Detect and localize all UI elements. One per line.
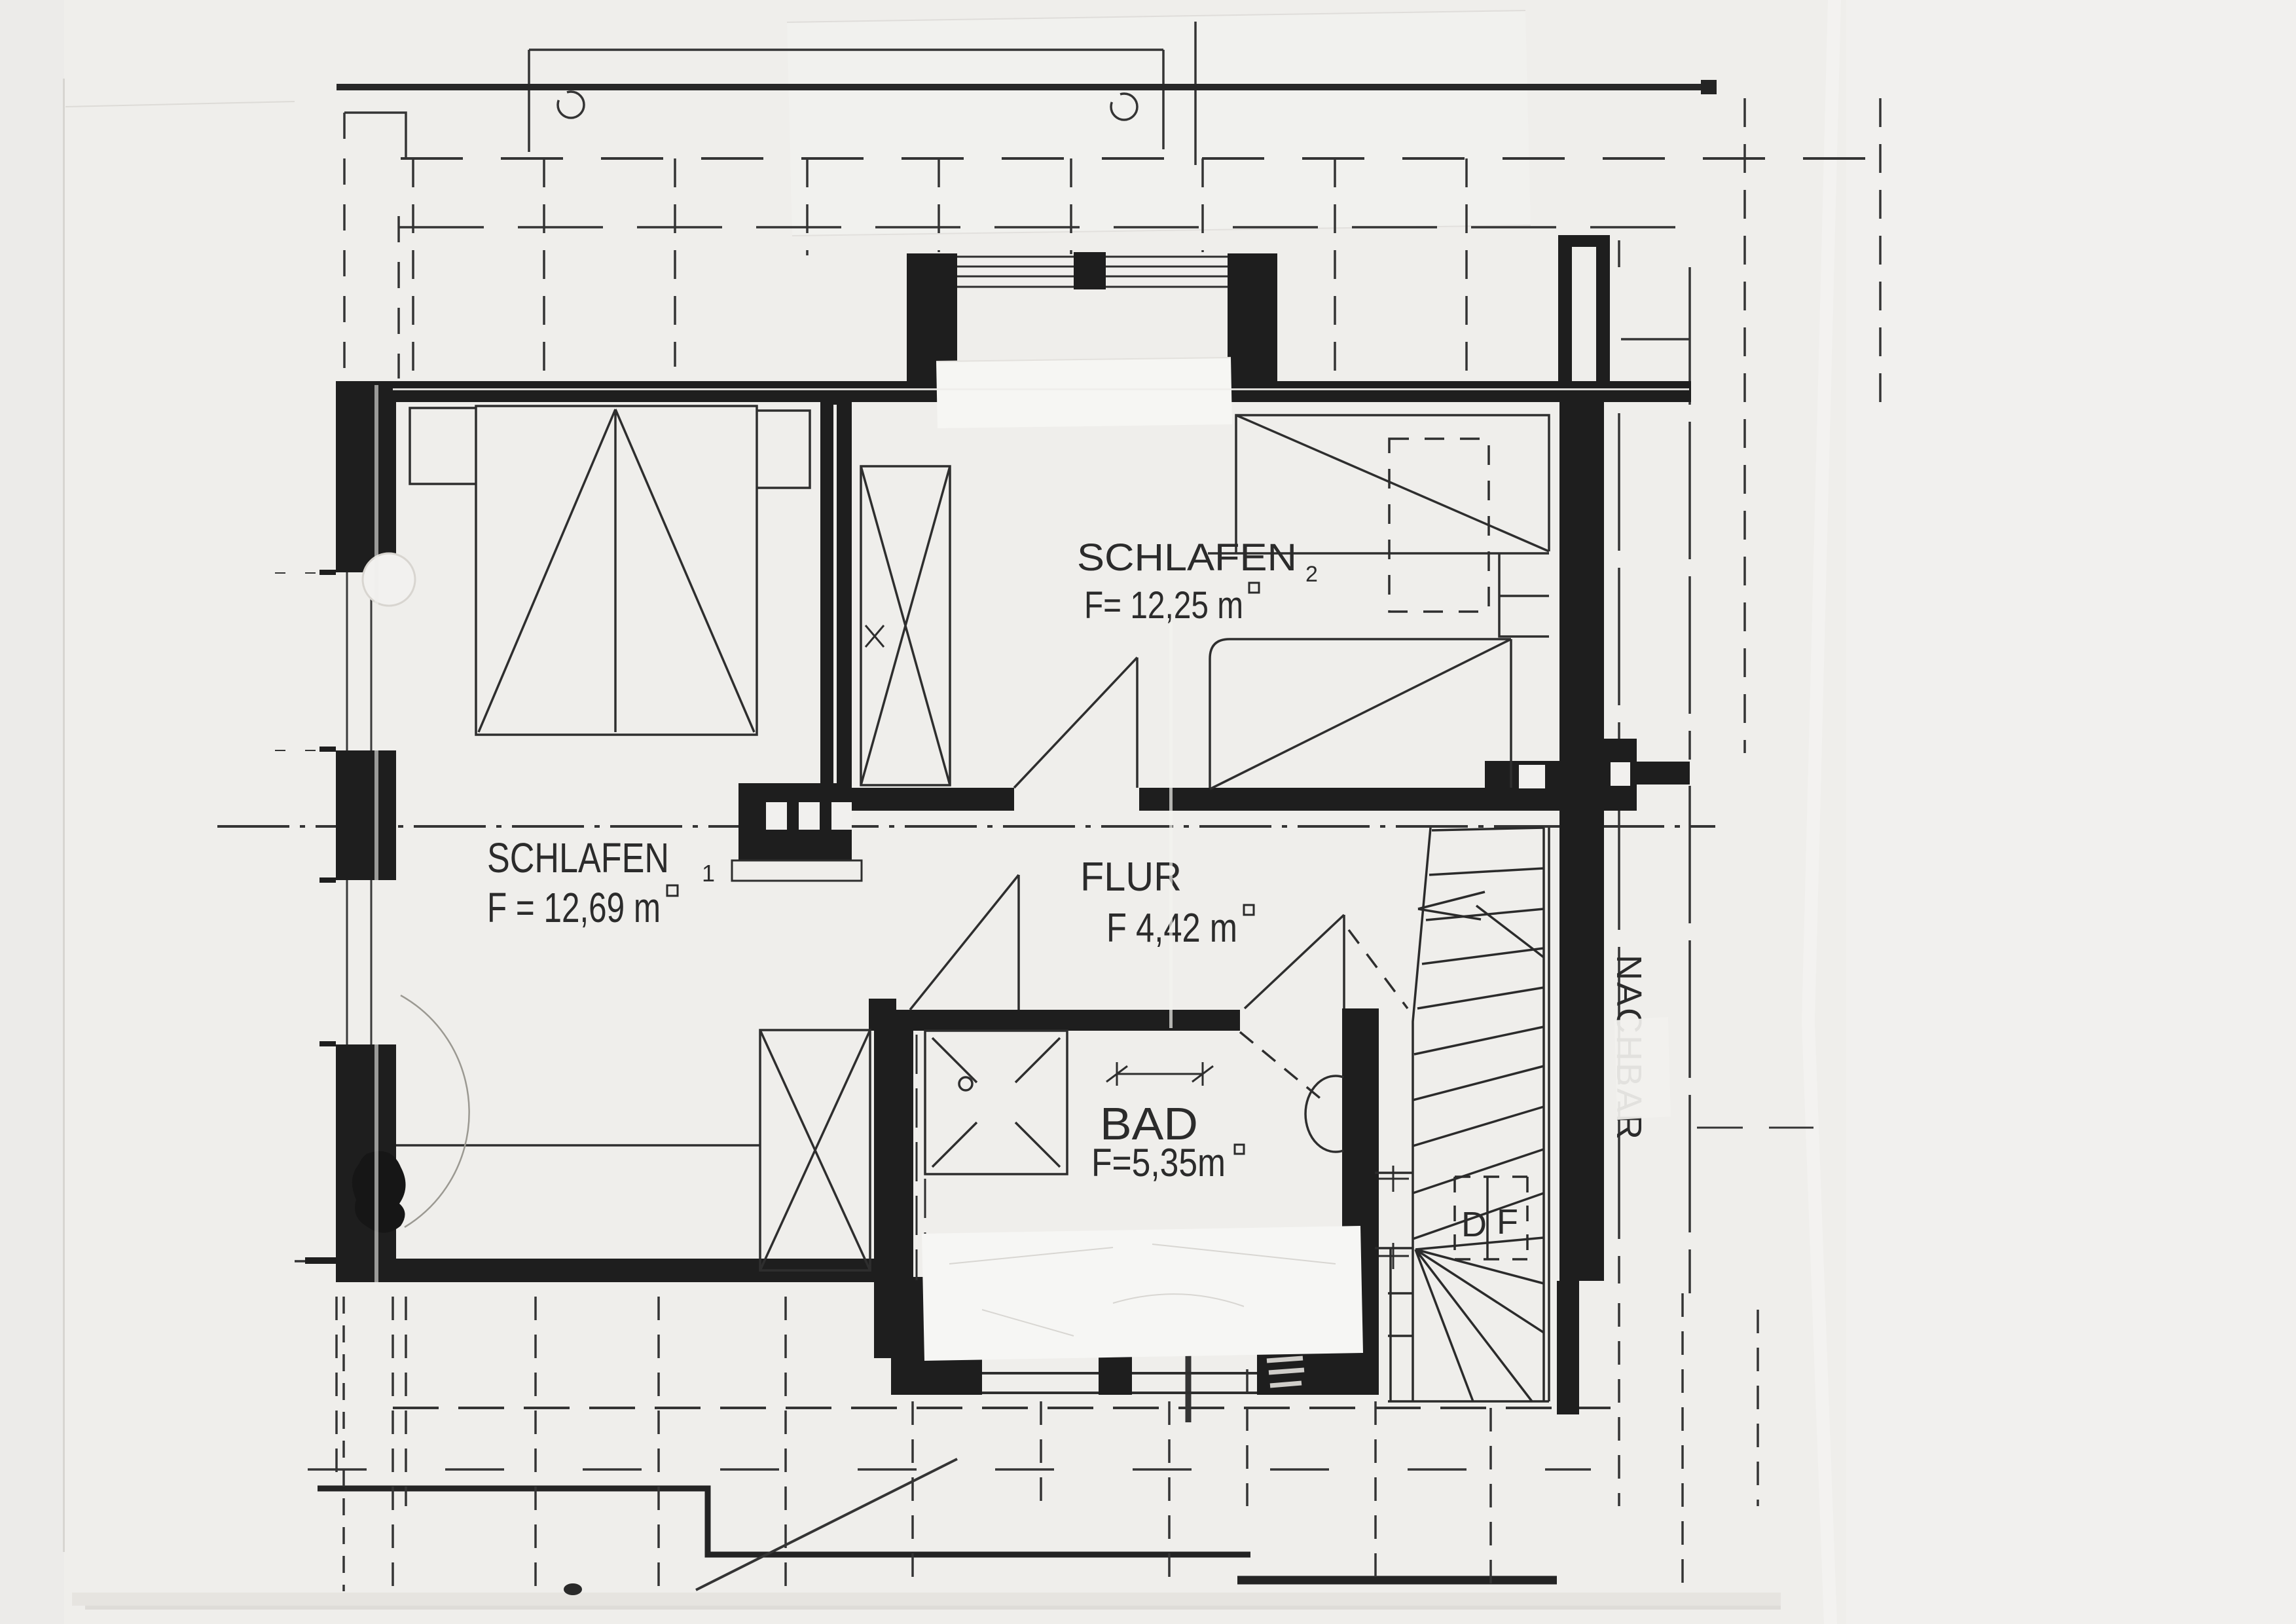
svg-text:FLUR: FLUR <box>1080 855 1182 900</box>
svg-text:F = 12,69 m: F = 12,69 m <box>487 884 661 931</box>
svg-text:SCHLAFEN: SCHLAFEN <box>1077 536 1297 579</box>
svg-text:F: F <box>1497 1202 1518 1242</box>
svg-text:SCHLAFEN: SCHLAFEN <box>487 834 669 881</box>
svg-text:D: D <box>1461 1205 1487 1244</box>
svg-text:1: 1 <box>702 860 715 887</box>
svg-text:2: 2 <box>1305 562 1318 587</box>
svg-text:F= 12,25 m: F= 12,25 m <box>1084 584 1243 627</box>
svg-text:F=5,35m: F=5,35m <box>1091 1141 1226 1185</box>
